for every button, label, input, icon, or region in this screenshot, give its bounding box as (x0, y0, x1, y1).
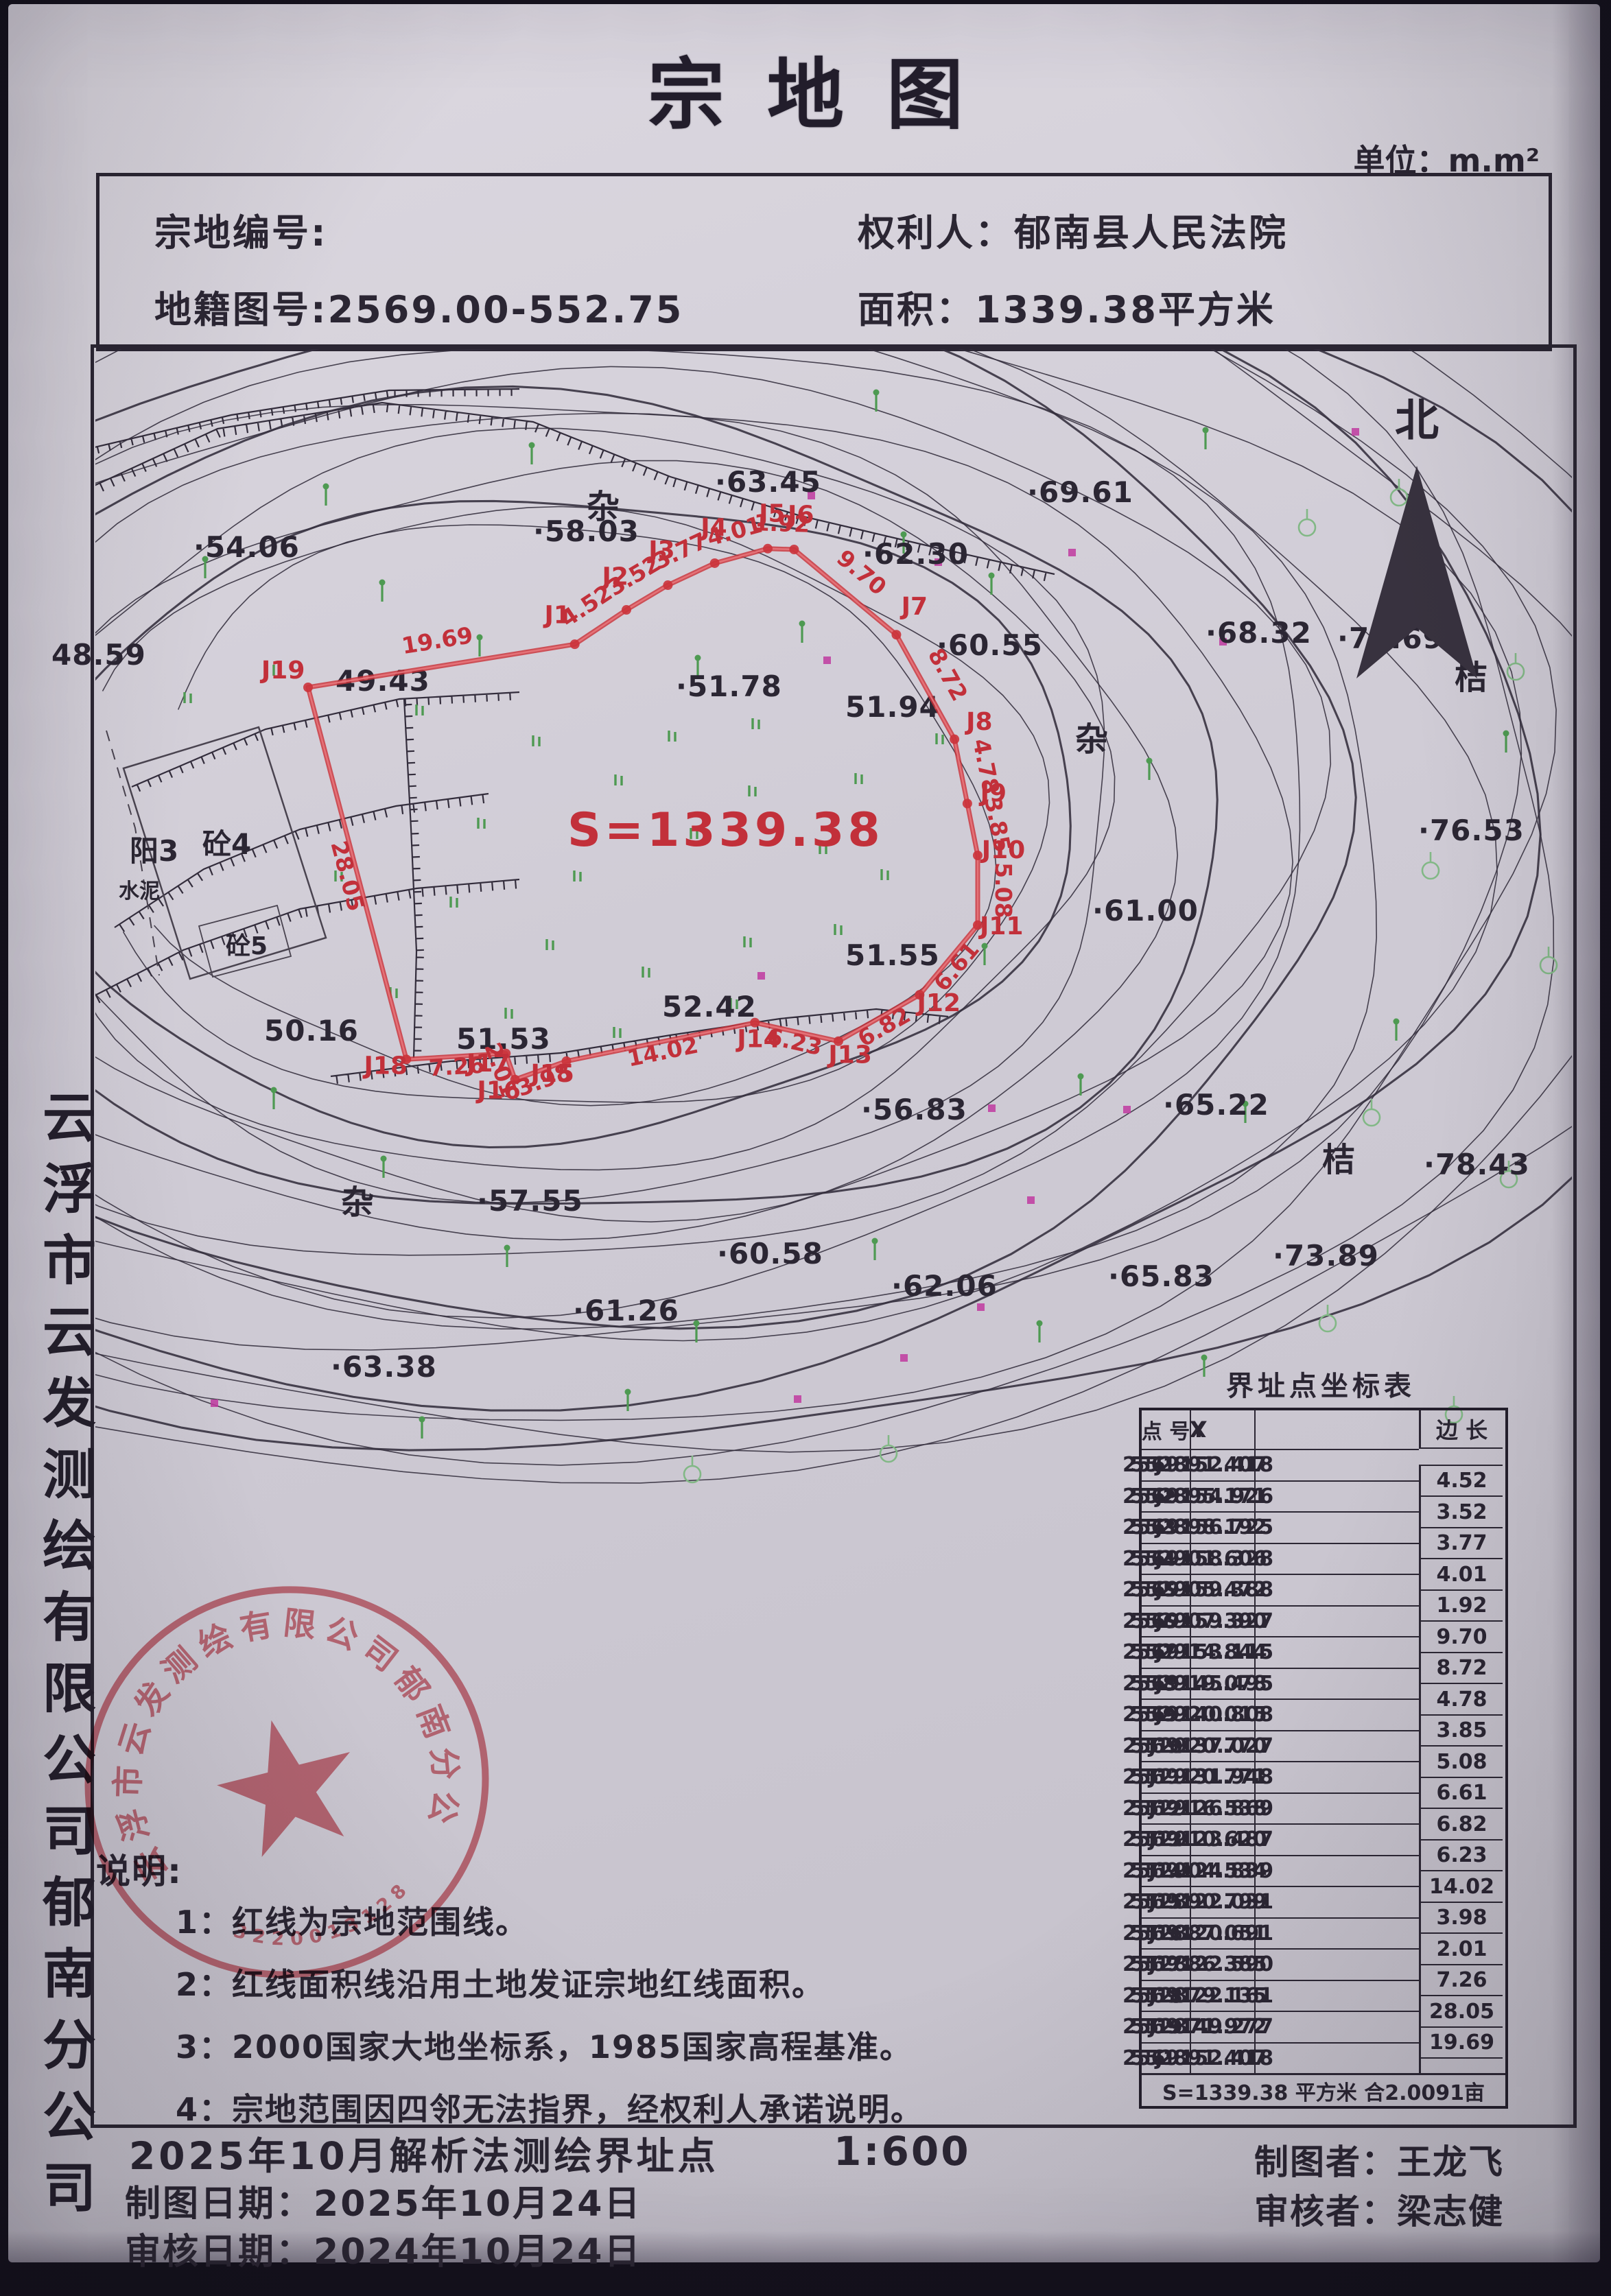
hachure-line (132, 692, 519, 792)
table-footer-area: S=1339.38 平方米 合2.0091亩 (1142, 2073, 1505, 2106)
area-row: 面积：1339.38平方米 (858, 279, 1275, 333)
table-row: J72569153.115552914.844 (1142, 1636, 1419, 1668)
side-length-cell: 4.01 (1419, 1558, 1503, 1589)
spot-height-label: ·61.26 (573, 1294, 679, 1327)
document-title: 宗地图 (0, 33, 1611, 144)
owner-label: 权利人： (858, 211, 1014, 255)
side-length-cell: 14.02 (1419, 1870, 1503, 1902)
review-date-value: 2024年10月24日 (314, 2232, 642, 2273)
side-length-cell: 4.78 (1419, 1683, 1503, 1714)
survey-marker-icon (1068, 549, 1076, 556)
side-length-cell: 7.26 (1419, 1964, 1503, 1996)
vegetation-type-label: 杂 (1075, 720, 1108, 759)
segment-length-label: 1.92 (753, 509, 810, 538)
tree-icon (799, 621, 805, 643)
spot-height-label: ·68.32 (1206, 616, 1312, 650)
table-header-row: 点 号XY (1142, 1410, 1419, 1449)
segment-length-label: 6.23 (764, 1023, 825, 1061)
sheet-number-label: 地籍图号: (154, 288, 328, 331)
boundary-vertex-dot (710, 558, 720, 568)
spot-height-label: ·65.22 (1163, 1088, 1269, 1122)
sheet-number-value: 2569.00-552.75 (328, 288, 684, 331)
boundary-vertex-dot (891, 630, 901, 639)
vertex-label: J18 (362, 1052, 408, 1080)
area-value: 1339.38平方米 (975, 288, 1275, 331)
spot-height-label: ·73.89 (1273, 1239, 1379, 1273)
side-length-cell: 1.92 (1419, 1589, 1503, 1621)
grass-icon (185, 692, 191, 703)
boundary-vertex-dot (789, 545, 799, 554)
map-scale: 1:600 (834, 2128, 971, 2175)
grass-icon (478, 818, 484, 829)
sheet-number-row: 地籍图号:2569.00-552.75 (154, 279, 683, 333)
segment-length-label: 4.78 (967, 736, 1004, 796)
fruit-tree-icon (1507, 653, 1524, 680)
table-row: J192569149.277552871.972 (1142, 2011, 1419, 2042)
tree-icon (625, 1389, 631, 1412)
table-row: J112569131.948552920.771 (1142, 1761, 1419, 1792)
table-row: J162569120.691552887.051 (1142, 1917, 1419, 1949)
fruit-tree-icon (1299, 509, 1315, 536)
drafter-label: 制图者： (1254, 2142, 1397, 2182)
vertex-label: J12 (915, 989, 961, 1017)
boundary-vertex-dot (963, 798, 972, 808)
survey-marker-icon (211, 1399, 218, 1407)
company-seal-stamp: 云浮市云发测绘有限公司郁南分公司 3220013128 (74, 1576, 513, 2002)
grass-icon (615, 774, 622, 785)
boundary-point-coordinate-table: 点 号XYJ12569152.418552891.407J22569154.92… (1139, 1408, 1508, 2109)
table-row: J142569124.839552904.534 (1142, 1855, 1419, 1886)
length-column-header: 边 长 (1419, 1410, 1503, 1449)
parcel-area-label: S=1339.38 (567, 803, 884, 857)
side-length-cell: 3.85 (1419, 1714, 1503, 1746)
grass-icon (856, 773, 862, 784)
stamp-star-icon (205, 1704, 370, 1864)
spot-height-label: ·51.78 (676, 670, 782, 703)
building-label: 砼5 (226, 932, 268, 960)
tree-icon (1203, 427, 1209, 450)
survey-marker-icon (900, 1354, 908, 1362)
drawing-date-value: 2025年10月24日 (314, 2183, 642, 2225)
spot-height-label: 51.94 (845, 690, 940, 724)
spot-height-label: ·57.55 (477, 1184, 583, 1218)
fruit-tree-icon (1363, 1099, 1380, 1126)
grass-icon (533, 735, 539, 746)
owner-value: 郁南县人民法院 (1014, 211, 1288, 255)
grass-icon (835, 924, 841, 935)
side-length-cell: 4.52 (1419, 1465, 1503, 1496)
tree-icon (271, 1087, 277, 1110)
review-date-label: 审核日期： (125, 2232, 314, 2273)
tree-icon (1503, 731, 1509, 753)
slope-hachure-lines (73, 389, 1055, 1084)
grass-icon (506, 1008, 512, 1019)
note-item-4: 4：宗地范围因四邻无法指界，经权利人承诺说明。 (176, 2085, 924, 2130)
tree-icon (872, 1238, 878, 1261)
side-length-cell: 6.82 (1419, 1808, 1503, 1839)
spot-height-label: ·76.53 (1418, 814, 1525, 847)
table-row: J102569137.027552920.770 (1142, 1730, 1419, 1762)
side-length-cell: 3.77 (1419, 1527, 1503, 1559)
drafter-row: 制图者：王龙飞 (1254, 2135, 1504, 2184)
spot-height-label: ·61.00 (1092, 894, 1199, 927)
fruit-tree-icon (1319, 1305, 1336, 1332)
survey-marker-icon (1027, 1196, 1035, 1204)
survey-marker-icon (823, 656, 831, 664)
boundary-vertex-dot (763, 544, 773, 554)
segment-length-label: 19.69 (400, 622, 475, 659)
spot-height-label: ·63.45 (715, 465, 821, 499)
drafter-name: 王龙飞 (1397, 2142, 1504, 2182)
parcel-boundary-group: J1J2J3J4J5J6J7J8J9J10J11J12J13J14J15J16J… (259, 499, 1025, 1104)
tree-icon (477, 635, 483, 657)
spot-height-label: 51.55 (845, 938, 940, 972)
side-length-cell: 19.69 (1419, 2026, 1503, 2058)
header-box: 宗地编号: 地籍图号:2569.00-552.75 权利人：郁南县人民法院 面积… (96, 173, 1552, 351)
survey-marker-icon (757, 972, 765, 980)
side-length-cell: 9.70 (1419, 1620, 1503, 1652)
boundary-vertex-dot (570, 639, 580, 649)
grass-icon (614, 1027, 620, 1038)
spot-height-label: ·60.58 (717, 1237, 823, 1270)
grass-icon (937, 733, 943, 744)
review-date-row: 审核日期：2024年10月24日 (125, 2223, 642, 2274)
side-length-cell: 6.61 (1419, 1777, 1503, 1808)
table-row: J152569122.031552890.799 (1142, 1886, 1419, 1917)
reviewer-row: 审核者：梁志健 (1254, 2184, 1504, 2234)
table-row: J62569159.327552907.390 (1142, 1605, 1419, 1637)
side-length-cell: 28.05 (1419, 1995, 1503, 2026)
boundary-vertex-dot (622, 605, 631, 615)
tree-icon (323, 484, 329, 506)
drawing-date-row: 制图日期：2025年10月24日 (125, 2175, 642, 2226)
table-row: J172569122.590552886.385 (1142, 1948, 1419, 1980)
survey-marker-icon (977, 1303, 985, 1311)
survey-method-line: 2025年10月解析法测绘界址点 (129, 2125, 719, 2180)
vertex-label: J7 (899, 593, 928, 621)
buildings: 阳3砼4砼5水泥 (106, 727, 326, 979)
area-label: 面积： (858, 288, 975, 331)
table-row: J92569140.808552920.015 (1142, 1699, 1419, 1730)
spot-height-label: ·54.06 (193, 530, 300, 564)
stamp-serial: 3220013128 (226, 1873, 423, 1967)
spot-height-label: ·65.83 (1108, 1259, 1214, 1293)
boundary-vertex-dot (950, 735, 959, 744)
grass-icon (451, 897, 457, 908)
reviewer-name: 梁志健 (1397, 2192, 1504, 2232)
scanned-parcel-map-photo: 宗地图 单位：m.m² 宗地编号: 地籍图号:2569.00-552.75 权利… (0, 0, 1611, 2296)
side-length-cell: 3.98 (1419, 1902, 1503, 1933)
side-length-cell: 6.23 (1419, 1839, 1503, 1871)
spot-height-label: 52.42 (662, 990, 757, 1023)
contour-line (0, 271, 1376, 1329)
segment-length-label: 14.02 (625, 1031, 701, 1072)
vegetation-type-label: 杂 (587, 488, 620, 526)
side-length-cell: 5.08 (1419, 1745, 1503, 1777)
vertex-label: J8 (964, 708, 992, 736)
vegetation-type-label: 桔 (1322, 1141, 1355, 1179)
parcel-number-row: 宗地编号: (154, 202, 328, 257)
spot-height-label: ·56.83 (861, 1093, 967, 1126)
boundary-vertex-dot (663, 580, 672, 590)
fruit-tree-icon (684, 1456, 701, 1482)
table-row: J42569158.328552901.606 (1142, 1543, 1419, 1574)
tree-icon (873, 390, 880, 412)
spot-height-label: 50.16 (264, 1014, 359, 1048)
grass-icon (547, 939, 553, 950)
survey-marker-icon (1352, 428, 1359, 436)
spot-height-label: ·63.38 (331, 1350, 437, 1384)
spot-height-label: ·62.30 (862, 537, 969, 571)
grass-icon (643, 967, 649, 978)
spot-height-label: ·78.43 (1424, 1148, 1530, 1181)
table-row: J12569152.418552891.407 (1142, 2042, 1419, 2074)
grass-icon (753, 718, 759, 729)
tree-icon (381, 1156, 387, 1179)
tree-icon (1146, 758, 1153, 781)
hachure-line (404, 699, 424, 1058)
tree-icon (529, 442, 535, 465)
building-label: 砼4 (202, 827, 251, 861)
drawing-date-label: 制图日期： (125, 2183, 314, 2225)
side-length-cell: 2.01 (1419, 1932, 1503, 1964)
fruit-tree-icon (1540, 947, 1557, 973)
grass-icon (574, 871, 580, 881)
segment-length-label: 7.26 (428, 1052, 486, 1082)
tree-icon (379, 580, 386, 602)
parcel-number-label: 宗地编号: (154, 211, 328, 255)
vertex-label: J19 (259, 656, 305, 685)
building-label: 阳3 (130, 834, 178, 868)
table-row: J32569156.725552898.192 (1142, 1511, 1419, 1543)
length-column-filler (1419, 2057, 1503, 2073)
table-row: J122569126.869552916.538 (1142, 1792, 1419, 1824)
tree-icon (504, 1245, 510, 1268)
fruit-tree-icon (1422, 852, 1439, 879)
table-row: J22569154.926552895.171 (1142, 1480, 1419, 1512)
tree-icon (1394, 1019, 1400, 1041)
spot-height-label: 48.59 (51, 638, 146, 672)
survey-marker-icon (794, 1395, 801, 1403)
note-item-3: 3：2000国家大地坐标系，1985国家高程基准。 (176, 2022, 924, 2068)
building-label: 水泥 (119, 879, 160, 903)
grass-icon (749, 785, 755, 796)
tree-icon (694, 1321, 700, 1343)
table-row: J182569122.161552879.135 (1142, 1980, 1419, 2011)
grass-icon (416, 705, 423, 715)
side-length-cell: 3.52 (1419, 1495, 1503, 1527)
north-label: 北 (1395, 396, 1439, 447)
grass-icon (669, 731, 675, 742)
spot-height-label: ·69.61 (1027, 475, 1133, 509)
segment-length-label: 5.08 (990, 862, 1017, 918)
coordinate-table-title: 界址点坐标表 (1136, 1364, 1506, 1404)
owner-row: 权利人：郁南县人民法院 (858, 202, 1288, 257)
reviewer-label: 审核者： (1254, 2192, 1397, 2232)
grass-icon (882, 869, 888, 880)
table-row: J132569123.487552910.620 (1142, 1823, 1419, 1855)
table-row: J12569152.418552891.407 (1142, 1449, 1419, 1480)
vegetation-type-label: 杂 (341, 1183, 374, 1222)
survey-marker-icon (1123, 1106, 1131, 1113)
grass-icon (744, 936, 751, 947)
spot-height-label: ·62.06 (891, 1269, 998, 1303)
tree-icon (1037, 1321, 1043, 1343)
side-length-cell: 8.72 (1419, 1652, 1503, 1683)
table-row: J82569145.495552919.078 (1142, 1668, 1419, 1699)
survey-marker-icon (988, 1104, 996, 1112)
tree-icon (419, 1417, 425, 1439)
spot-height-labels: ·63.45·69.61·58.03·54.06·62.3048.5949.43… (51, 465, 1530, 1384)
table-row: J52569159.388552905.472 (1142, 1574, 1419, 1605)
